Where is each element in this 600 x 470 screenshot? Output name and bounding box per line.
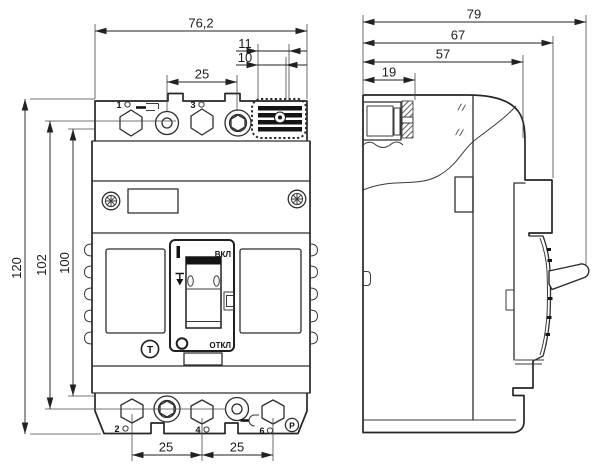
face-tick (548, 297, 553, 300)
dim-pitch-bottom-left: 25 (159, 440, 173, 455)
position-mark-on-I (177, 246, 181, 258)
terminal-label-1: 1 (116, 100, 121, 110)
dim-depth-total: 79 (467, 7, 481, 22)
terminal-label-3: 3 (190, 100, 195, 110)
dim-overall-height: 120 (9, 257, 24, 279)
breaker-dimension-drawing: 1 3 ВКЛ (0, 0, 600, 470)
dim-depth-bezel: 67 (451, 28, 465, 43)
rib-center-dot (278, 116, 282, 120)
hatched-clamp-lower (402, 123, 413, 138)
technical-drawing-page: 1 3 ВКЛ (0, 0, 600, 470)
phillips-cross (105, 195, 117, 207)
terminal-label-4: 4 (195, 425, 200, 435)
dim-pitch-top: 25 (195, 67, 209, 82)
dim-depth-cover: 57 (436, 47, 450, 62)
handle-top-band (186, 257, 221, 265)
face-tick (546, 333, 551, 336)
dim-detail-outer: 11 (238, 36, 252, 51)
phillips-cross (291, 193, 303, 205)
dim-terminal-depth: 19 (382, 65, 396, 80)
toggle-handle[interactable] (186, 257, 221, 328)
rib-bar (258, 127, 302, 132)
terminal-label-2: 2 (114, 424, 119, 434)
off-marking: ОТКЛ (209, 341, 231, 350)
aux-badge-label: Р (289, 420, 295, 430)
test-button-label: Т (147, 345, 153, 356)
dim-detail-inner: 10 (238, 50, 252, 65)
face-tick (547, 316, 552, 319)
dim-inner-height: 100 (57, 252, 72, 274)
face-tick (547, 248, 552, 251)
face-tick (548, 259, 553, 262)
dim-mounting-height: 102 (34, 254, 49, 276)
hatched-clamp-upper (402, 101, 413, 117)
dim-overall-width: 76,2 (188, 16, 213, 31)
dim-pitch-bottom-right: 25 (230, 440, 244, 455)
rib-bar (258, 106, 302, 111)
background (0, 0, 600, 470)
terminal-label-6: 6 (259, 426, 264, 436)
